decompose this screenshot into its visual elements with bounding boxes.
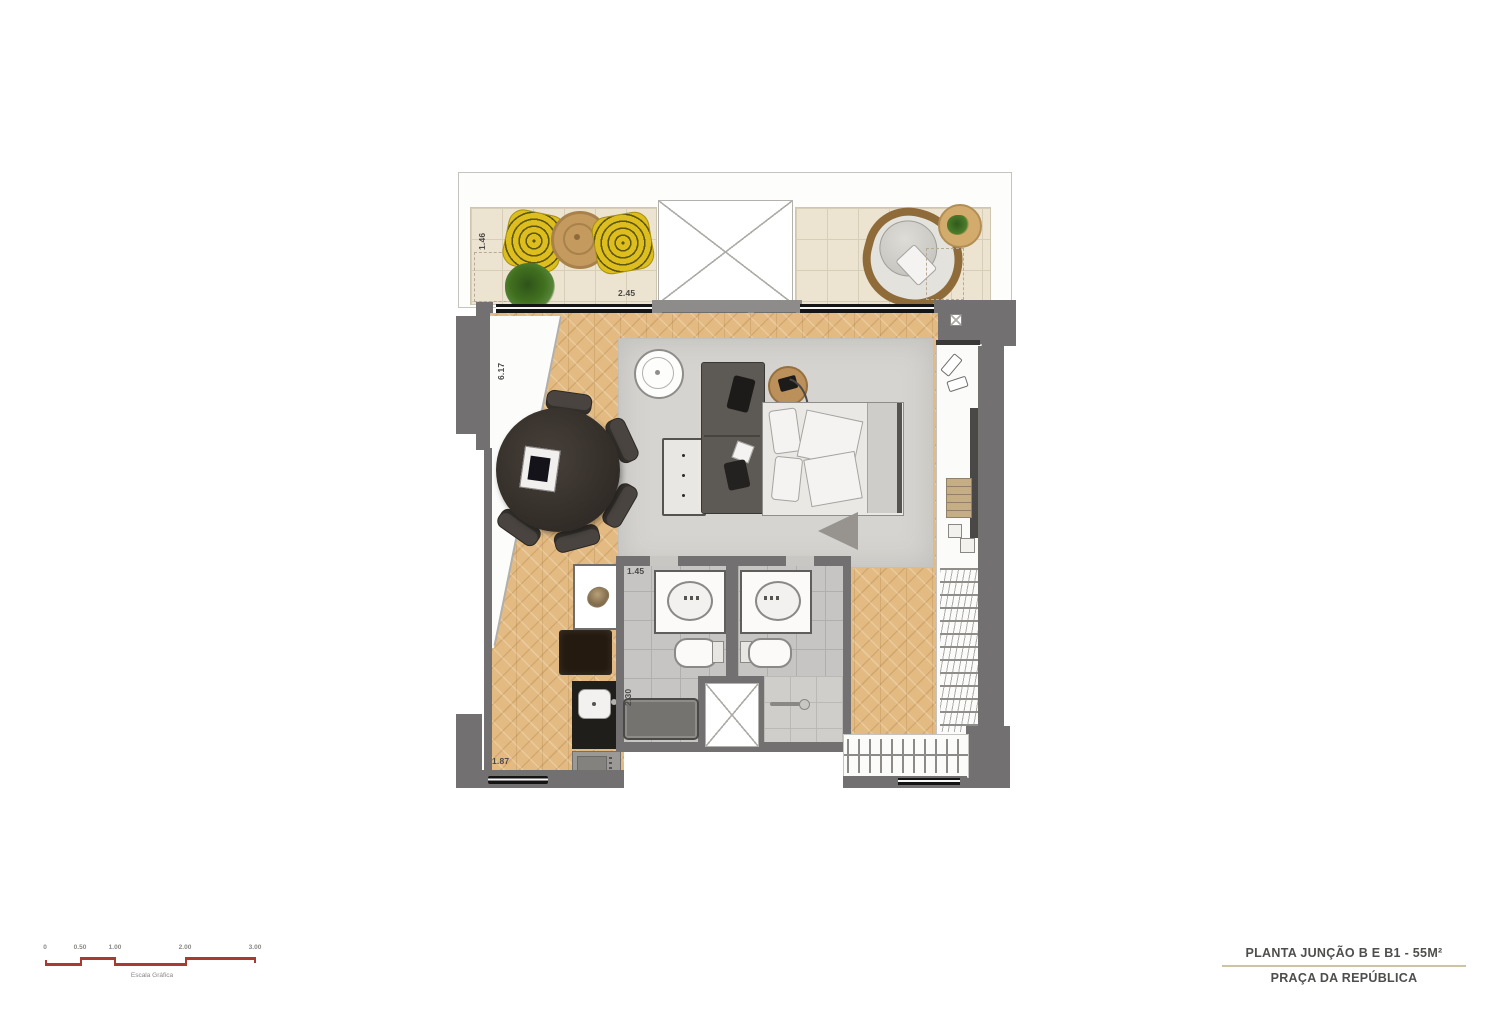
dim-balcony-depth: 1.46 <box>477 208 487 250</box>
folded-clothes <box>946 478 972 518</box>
scale-label: 0.50 <box>67 944 93 951</box>
closet-hanging-rail <box>940 568 978 732</box>
sofa-seat-line <box>704 435 760 437</box>
tufting-dot <box>682 454 685 457</box>
wardrobe-rail <box>844 754 968 756</box>
scale-label: 0 <box>32 944 58 951</box>
dim-kitchen-width: 1.87 <box>492 756 509 766</box>
vanity-right <box>740 570 812 634</box>
table-center <box>574 234 580 240</box>
plan-title: PLANTA JUNÇÃO B E B1 - 55M² <box>1222 946 1466 960</box>
sink-drain <box>592 702 596 706</box>
bed-duvet <box>803 451 863 507</box>
floor-plan-sheet: 1.46 2.45 6.17 <box>0 0 1489 1024</box>
scale-step <box>185 957 187 966</box>
closet-box <box>960 538 975 553</box>
sofa <box>701 362 765 514</box>
window-bottom-right <box>898 778 960 785</box>
project-name: PRAÇA DA REPÚBLICA <box>1222 971 1466 985</box>
scale-caption: Escala Gráfica <box>40 972 264 979</box>
wall-right-corner <box>966 726 1010 788</box>
dining-table <box>496 408 620 532</box>
tufting-dot <box>682 474 685 477</box>
table-placemat <box>519 446 560 493</box>
bed-headboard-edge <box>897 403 902 513</box>
dim-bathroom-depth: 2.30 <box>623 672 633 706</box>
ottoman <box>662 438 706 516</box>
bath-bench <box>623 698 699 740</box>
placemat-tray <box>527 456 550 483</box>
kitchen-counter <box>572 681 619 749</box>
kitchen-cabinet <box>559 630 612 675</box>
title-divider <box>1222 965 1466 967</box>
scale-segment <box>45 963 80 966</box>
scale-step <box>114 957 116 966</box>
shower-grab-bar <box>770 702 800 706</box>
scale-segment <box>80 957 115 960</box>
toilet-left-tank <box>712 641 724 663</box>
tufting-dot <box>682 494 685 497</box>
scale-segment <box>185 957 255 960</box>
exterior-gap <box>624 752 843 776</box>
scale-bar: 0 0.50 1.00 2.00 3.00 Escala Gráfica <box>40 944 264 986</box>
bathroom-wall-right <box>843 556 851 752</box>
scale-label: 1.00 <box>102 944 128 951</box>
wardrobe-bottom <box>843 734 969 778</box>
lounge-chair-yellow-right <box>589 209 656 276</box>
bed <box>762 402 904 516</box>
bathroom-door <box>786 556 814 566</box>
bed-pillow <box>771 456 803 503</box>
sofa-throw-dark <box>726 375 756 413</box>
void-shaft <box>658 200 793 304</box>
scale-step <box>80 957 82 966</box>
column-left <box>456 316 478 434</box>
bathroom-door <box>650 556 678 566</box>
sliding-door-right <box>800 304 934 313</box>
scale-label: 3.00 <box>242 944 268 951</box>
stove-knobs <box>609 757 612 770</box>
closet-box <box>948 524 962 538</box>
bed-pillow <box>768 407 802 454</box>
faucet <box>764 596 780 600</box>
wardrobe-hangers <box>847 739 965 773</box>
lamp-center <box>655 370 660 375</box>
basin <box>755 581 801 621</box>
duct-shaft <box>698 676 764 752</box>
duct-shaft-inner <box>705 683 759 747</box>
sofa-throw-dark <box>723 459 750 491</box>
dim-bathroom-width: 1.45 <box>627 566 644 576</box>
sliding-door-left <box>496 304 652 313</box>
window-bottom-left <box>488 776 548 784</box>
column-marker <box>950 314 962 326</box>
shower-bar-knob <box>799 699 810 710</box>
bathroom-wall-center <box>726 562 738 682</box>
plant-small <box>947 215 969 235</box>
toilet-right <box>748 638 792 668</box>
dim-living-length: 6.17 <box>496 336 506 380</box>
scale-label: 2.00 <box>172 944 198 951</box>
scale-segment <box>115 963 185 966</box>
wall-right <box>978 346 1004 736</box>
shell-decor <box>584 582 612 611</box>
wall-left-thin <box>484 448 492 772</box>
floor-lamp <box>634 349 684 399</box>
plant-side-table <box>938 204 982 248</box>
vanity-left <box>654 570 726 634</box>
balcony-right-dashed-area <box>926 248 964 300</box>
bed-headboard <box>867 403 898 513</box>
dim-balcony-width: 2.45 <box>618 288 635 298</box>
scale-tick <box>254 957 256 963</box>
title-block: PLANTA JUNÇÃO B E B1 - 55M² PRAÇA DA REP… <box>1222 946 1466 985</box>
faucet <box>684 596 700 600</box>
kitchen-sink <box>578 689 611 719</box>
basin <box>667 581 713 621</box>
scale-tick <box>45 960 47 966</box>
closet-door-track <box>936 340 980 345</box>
